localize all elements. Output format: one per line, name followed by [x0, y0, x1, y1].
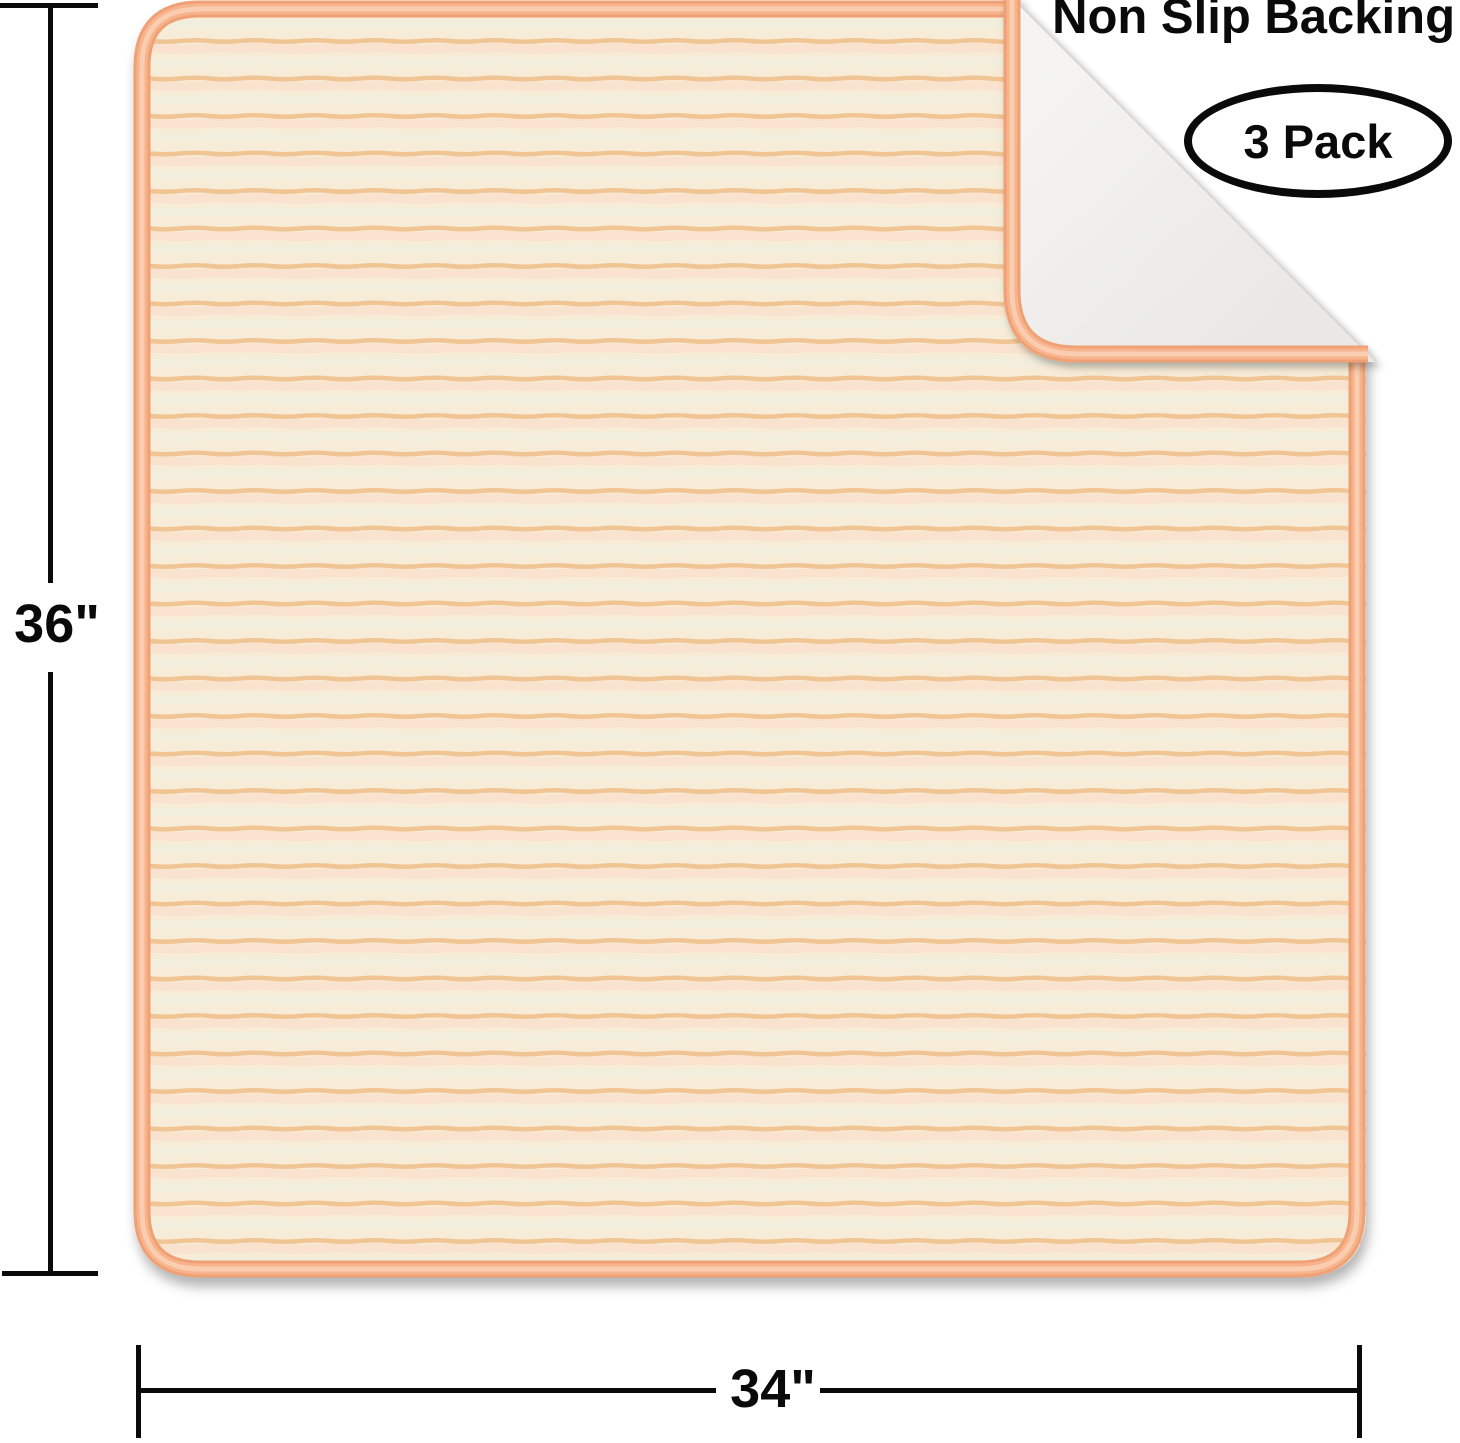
non-slip-backing-callout: Non Slip Backing [1052, 0, 1455, 42]
width-dimension-right-segment [820, 1388, 1362, 1393]
height-dimension-bottom-cap [2, 1271, 98, 1276]
pack-count-label: 3 Pack [1244, 118, 1393, 165]
product-image-canvas: 36" 34" Non Slip Backing 3 Pack [0, 0, 1460, 1443]
height-dimension-label: 36" [8, 597, 106, 651]
width-dimension-right-cap [1357, 1345, 1362, 1438]
pad-illustration [0, 0, 1460, 1443]
width-dimension-label: 34" [713, 1362, 833, 1416]
height-dimension-lower-segment [48, 672, 53, 1276]
height-dimension-upper-segment [48, 3, 53, 583]
pack-count-badge: 3 Pack [1184, 84, 1452, 198]
width-dimension-left-segment [136, 1388, 716, 1393]
